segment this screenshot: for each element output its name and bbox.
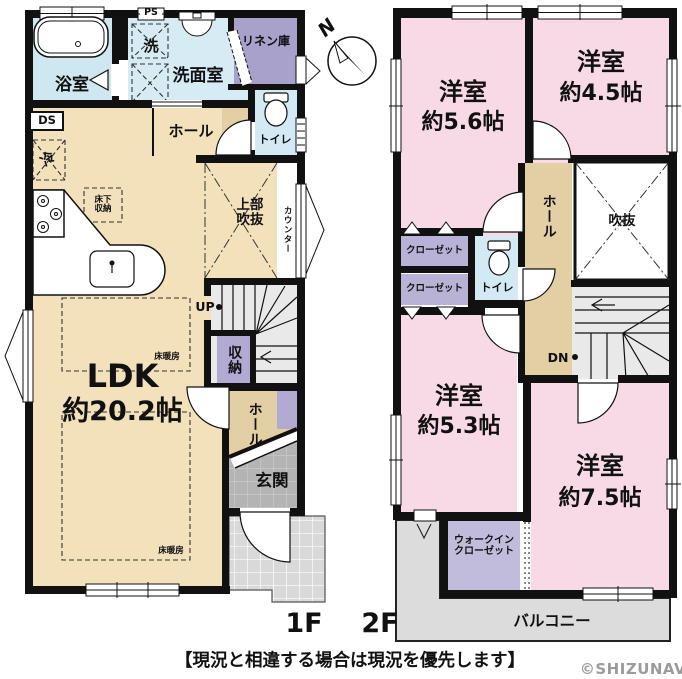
ps-box xyxy=(138,8,164,20)
floorplan-graphics xyxy=(0,0,682,679)
stairs2-area xyxy=(572,284,669,379)
ds-duct-box xyxy=(30,112,63,130)
toilet2-fixture xyxy=(488,241,510,275)
counter-area xyxy=(277,163,297,280)
counter-window-casement xyxy=(306,186,324,274)
wic-area xyxy=(448,521,520,590)
linen-window-casement xyxy=(306,58,320,84)
ldk-window-casement xyxy=(5,312,23,400)
storage-area xyxy=(217,336,250,383)
dn-marker-dot xyxy=(572,354,578,360)
shoe-cabinet-area xyxy=(277,391,297,429)
wic-curtain-opening xyxy=(523,522,531,590)
floorplan-image: 浴室 PS 洗 洗面室 リネン庫 トイレ ホール DS 冷 床下 収納 上部 吹… xyxy=(0,0,682,679)
up-marker-dot xyxy=(216,304,222,310)
compass-icon xyxy=(328,37,376,85)
closet1-area xyxy=(401,236,468,267)
void-under-area xyxy=(222,156,277,280)
closet2-area xyxy=(401,274,468,305)
